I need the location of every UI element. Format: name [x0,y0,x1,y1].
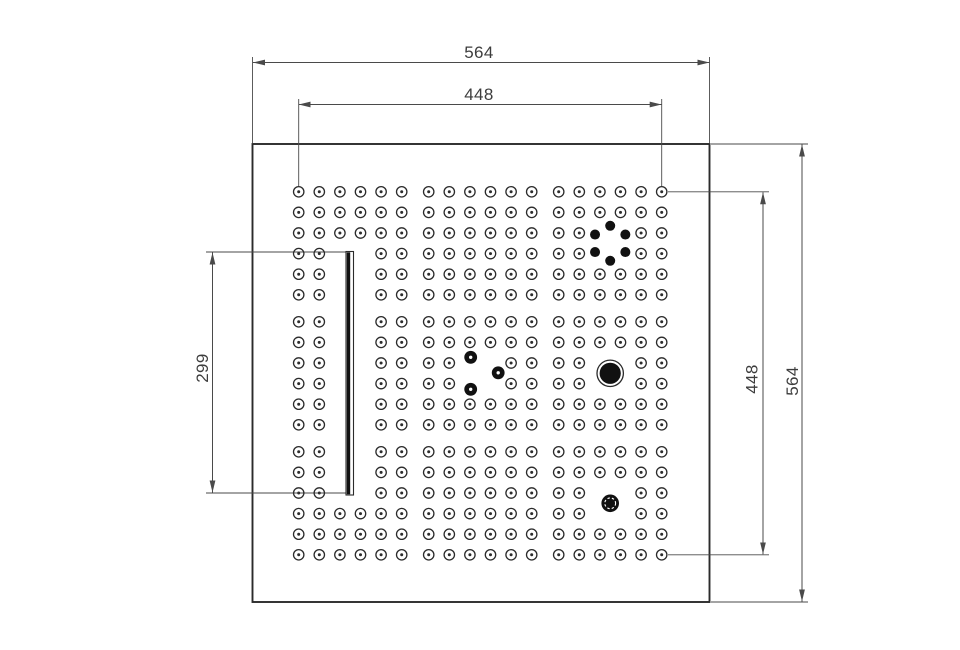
hole [554,187,564,197]
hole [657,508,667,518]
hole [294,207,304,217]
hole [485,228,495,238]
hole [397,207,407,217]
hole [424,488,434,498]
hole [444,269,454,279]
hole [595,467,605,477]
hex-cluster-dot [605,256,615,266]
hole [574,269,584,279]
hole [397,228,407,238]
hole [595,550,605,560]
hole [615,420,625,430]
hole [506,447,516,457]
hole [314,248,324,258]
hole [554,508,564,518]
hole [397,317,407,327]
hole [444,508,454,518]
hole [527,317,537,327]
hole [355,207,365,217]
hole [595,187,605,197]
hole [636,447,646,457]
hole [424,447,434,457]
hole [485,508,495,518]
hole [595,207,605,217]
hole [424,358,434,368]
hole [397,488,407,498]
hole [397,420,407,430]
hole [444,467,454,477]
hole [355,508,365,518]
hole [444,228,454,238]
mounting-slot [346,252,354,496]
hole [636,290,646,300]
hole [485,529,495,539]
hole [574,378,584,388]
hole [506,508,516,518]
hole [595,317,605,327]
hole [595,447,605,457]
hole [444,358,454,368]
hole [554,269,564,279]
hole [376,529,386,539]
triangle-dot-pilot [469,388,472,391]
hole [574,488,584,498]
hole [376,447,386,457]
hole [397,187,407,197]
hole [554,228,564,238]
hole [636,550,646,560]
hole [376,269,386,279]
hole [527,337,537,347]
hole [485,488,495,498]
hole [485,248,495,258]
hole [485,207,495,217]
hole [527,358,537,368]
hole [376,420,386,430]
hole [314,269,324,279]
hole [424,508,434,518]
hole [444,207,454,217]
hole [657,228,667,238]
hole [506,207,516,217]
hole [574,290,584,300]
hole [574,337,584,347]
hole [485,467,495,477]
hole [485,337,495,347]
hole [465,269,475,279]
hole [527,378,537,388]
hole [444,378,454,388]
hole [465,207,475,217]
technical-drawing: 564 448 299 448 564 [0,0,960,650]
hole [554,317,564,327]
hole [506,420,516,430]
hole [465,248,475,258]
hole [294,187,304,197]
hole [424,420,434,430]
hole [294,337,304,347]
hole [574,550,584,560]
hole [485,399,495,409]
hole [465,550,475,560]
hole [554,207,564,217]
hole [554,358,564,368]
hole [574,207,584,217]
hole [657,290,667,300]
hole [527,207,537,217]
hole [574,358,584,368]
hole [294,420,304,430]
hole [506,269,516,279]
hole [554,290,564,300]
dim-left-slot-length-label: 299 [193,353,212,383]
hole [485,269,495,279]
hole [465,317,475,327]
dimension-top-hole-span: 448 [299,85,662,186]
hole [657,467,667,477]
hex-bolt-cluster [590,221,630,266]
knurled-circle [601,495,619,513]
hole [397,529,407,539]
dot-triangle [464,351,504,396]
hole [527,290,537,300]
hole [376,187,386,197]
hole [424,399,434,409]
hole [615,447,625,457]
hole [527,187,537,197]
hole [397,248,407,258]
hole [636,337,646,347]
hole [355,550,365,560]
hole [554,488,564,498]
hole [506,358,516,368]
hole [615,187,625,197]
hole [636,269,646,279]
hole [506,290,516,300]
hole [506,550,516,560]
hole [335,228,345,238]
hole [465,187,475,197]
knurled-circle-body [601,495,619,513]
hole [397,447,407,457]
hole [465,447,475,457]
hole [424,207,434,217]
hole [376,378,386,388]
hole [424,187,434,197]
hole [397,399,407,409]
ring-circle-inner [600,363,621,384]
hole [314,447,324,457]
hole [574,529,584,539]
hole [554,337,564,347]
hole [657,248,667,258]
hole [314,207,324,217]
hole [554,529,564,539]
hole [376,508,386,518]
hole [294,248,304,258]
hole [615,529,625,539]
hole [444,337,454,347]
triangle-dot-pilot [497,371,500,374]
hole [574,187,584,197]
hole [314,508,324,518]
hole [465,529,475,539]
dimension-left-slot-length: 299 [193,252,346,493]
slot-bar [347,252,350,494]
hole [636,317,646,327]
hole [574,248,584,258]
hole [636,248,646,258]
hole [314,550,324,560]
hole [376,248,386,258]
hole [314,399,324,409]
hole [397,269,407,279]
hole [657,447,667,457]
hole [376,467,386,477]
hole [485,550,495,560]
hole [376,290,386,300]
hole [424,550,434,560]
hole [465,399,475,409]
hole [485,187,495,197]
hole [397,358,407,368]
hole [424,378,434,388]
hole [527,508,537,518]
hole [424,290,434,300]
hole [527,248,537,258]
hole [527,420,537,430]
hole [636,187,646,197]
hole [615,467,625,477]
hole [615,269,625,279]
hex-cluster-dot [620,247,630,257]
hole [294,290,304,300]
hole [335,187,345,197]
hole [506,187,516,197]
hole [657,488,667,498]
hole [636,488,646,498]
hole [424,228,434,238]
hole [574,228,584,238]
hole [506,529,516,539]
dim-top-hole-span-label: 448 [464,85,494,104]
hole [465,508,475,518]
hole [294,467,304,477]
hole [465,337,475,347]
hole [527,228,537,238]
hole [355,187,365,197]
hole [444,317,454,327]
drawing-canvas: 564 448 299 448 564 [0,0,960,650]
hole [376,337,386,347]
hole [595,269,605,279]
hole [636,420,646,430]
hole [444,447,454,457]
hole [294,508,304,518]
hole [397,550,407,560]
hole [506,248,516,258]
hole [485,447,495,457]
hole [554,399,564,409]
hole [314,317,324,327]
hole [335,207,345,217]
hole [574,447,584,457]
hole [465,467,475,477]
hole [376,358,386,368]
hole [657,269,667,279]
dim-right-height-label: 564 [783,366,802,396]
hole [595,399,605,409]
hole [314,378,324,388]
hole [506,399,516,409]
hole [595,420,605,430]
hole [636,467,646,477]
hole [574,399,584,409]
hole [397,508,407,518]
hole [444,187,454,197]
hole [376,228,386,238]
hole [444,529,454,539]
hole [527,447,537,457]
hole [294,447,304,457]
hole [424,467,434,477]
hole [355,228,365,238]
hole [636,378,646,388]
hole [527,269,537,279]
hole [397,290,407,300]
hole [485,420,495,430]
hole [615,550,625,560]
hole [506,467,516,477]
hole [554,378,564,388]
hole [657,337,667,347]
hole [314,358,324,368]
hole [636,508,646,518]
hole [294,358,304,368]
hole [636,228,646,238]
hole [424,337,434,347]
hole [294,317,304,327]
hole [314,467,324,477]
hole [424,248,434,258]
hole [527,550,537,560]
hole [574,317,584,327]
hole [424,317,434,327]
hole [657,358,667,368]
hole [465,488,475,498]
hole [376,550,386,560]
hole [485,317,495,327]
dim-right-hole-span-label: 448 [743,364,762,394]
hole [595,337,605,347]
hole [554,420,564,430]
hole [506,488,516,498]
hole [314,337,324,347]
hole [485,290,495,300]
hole [376,399,386,409]
hole [554,447,564,457]
hole [424,269,434,279]
hole [615,317,625,327]
hole [424,529,434,539]
hole [615,337,625,347]
hole [657,420,667,430]
dimension-right-hole-span: 448 [668,192,769,555]
hole [376,488,386,498]
large-ring-circle [597,360,623,386]
hole [554,467,564,477]
hole [397,378,407,388]
dim-top-width-label: 564 [464,43,494,62]
hole [615,290,625,300]
hole [527,529,537,539]
hole [636,529,646,539]
hole [657,207,667,217]
hole [294,529,304,539]
hole [314,187,324,197]
panel-features [464,221,630,512]
hole [657,550,667,560]
hole [595,290,605,300]
hole [595,529,605,539]
hole [506,378,516,388]
hole [335,550,345,560]
hole [554,248,564,258]
hole [657,187,667,197]
hole [657,399,667,409]
hex-cluster-dot [620,230,630,240]
hole [527,467,537,477]
hole [506,317,516,327]
hole [294,228,304,238]
hole [314,420,324,430]
hole [294,269,304,279]
hole [574,508,584,518]
hole [465,228,475,238]
hole [294,550,304,560]
hole [314,290,324,300]
hole [314,529,324,539]
hole [554,550,564,560]
hole [465,420,475,430]
hole [314,228,324,238]
hole [444,248,454,258]
hole [636,358,646,368]
hole [444,290,454,300]
hole [574,420,584,430]
hole [506,337,516,347]
hole [657,378,667,388]
hole [444,550,454,560]
hole [615,399,625,409]
hole [335,508,345,518]
hole [527,488,537,498]
hole [376,207,386,217]
hole [397,337,407,347]
hex-cluster-dot [605,221,615,231]
hole [355,529,365,539]
hole [636,207,646,217]
hole [465,290,475,300]
hole [615,207,625,217]
hole [444,420,454,430]
hole [376,317,386,327]
hex-cluster-dot [590,230,600,240]
hole [657,529,667,539]
hole [657,317,667,327]
hole [574,467,584,477]
hole [335,529,345,539]
